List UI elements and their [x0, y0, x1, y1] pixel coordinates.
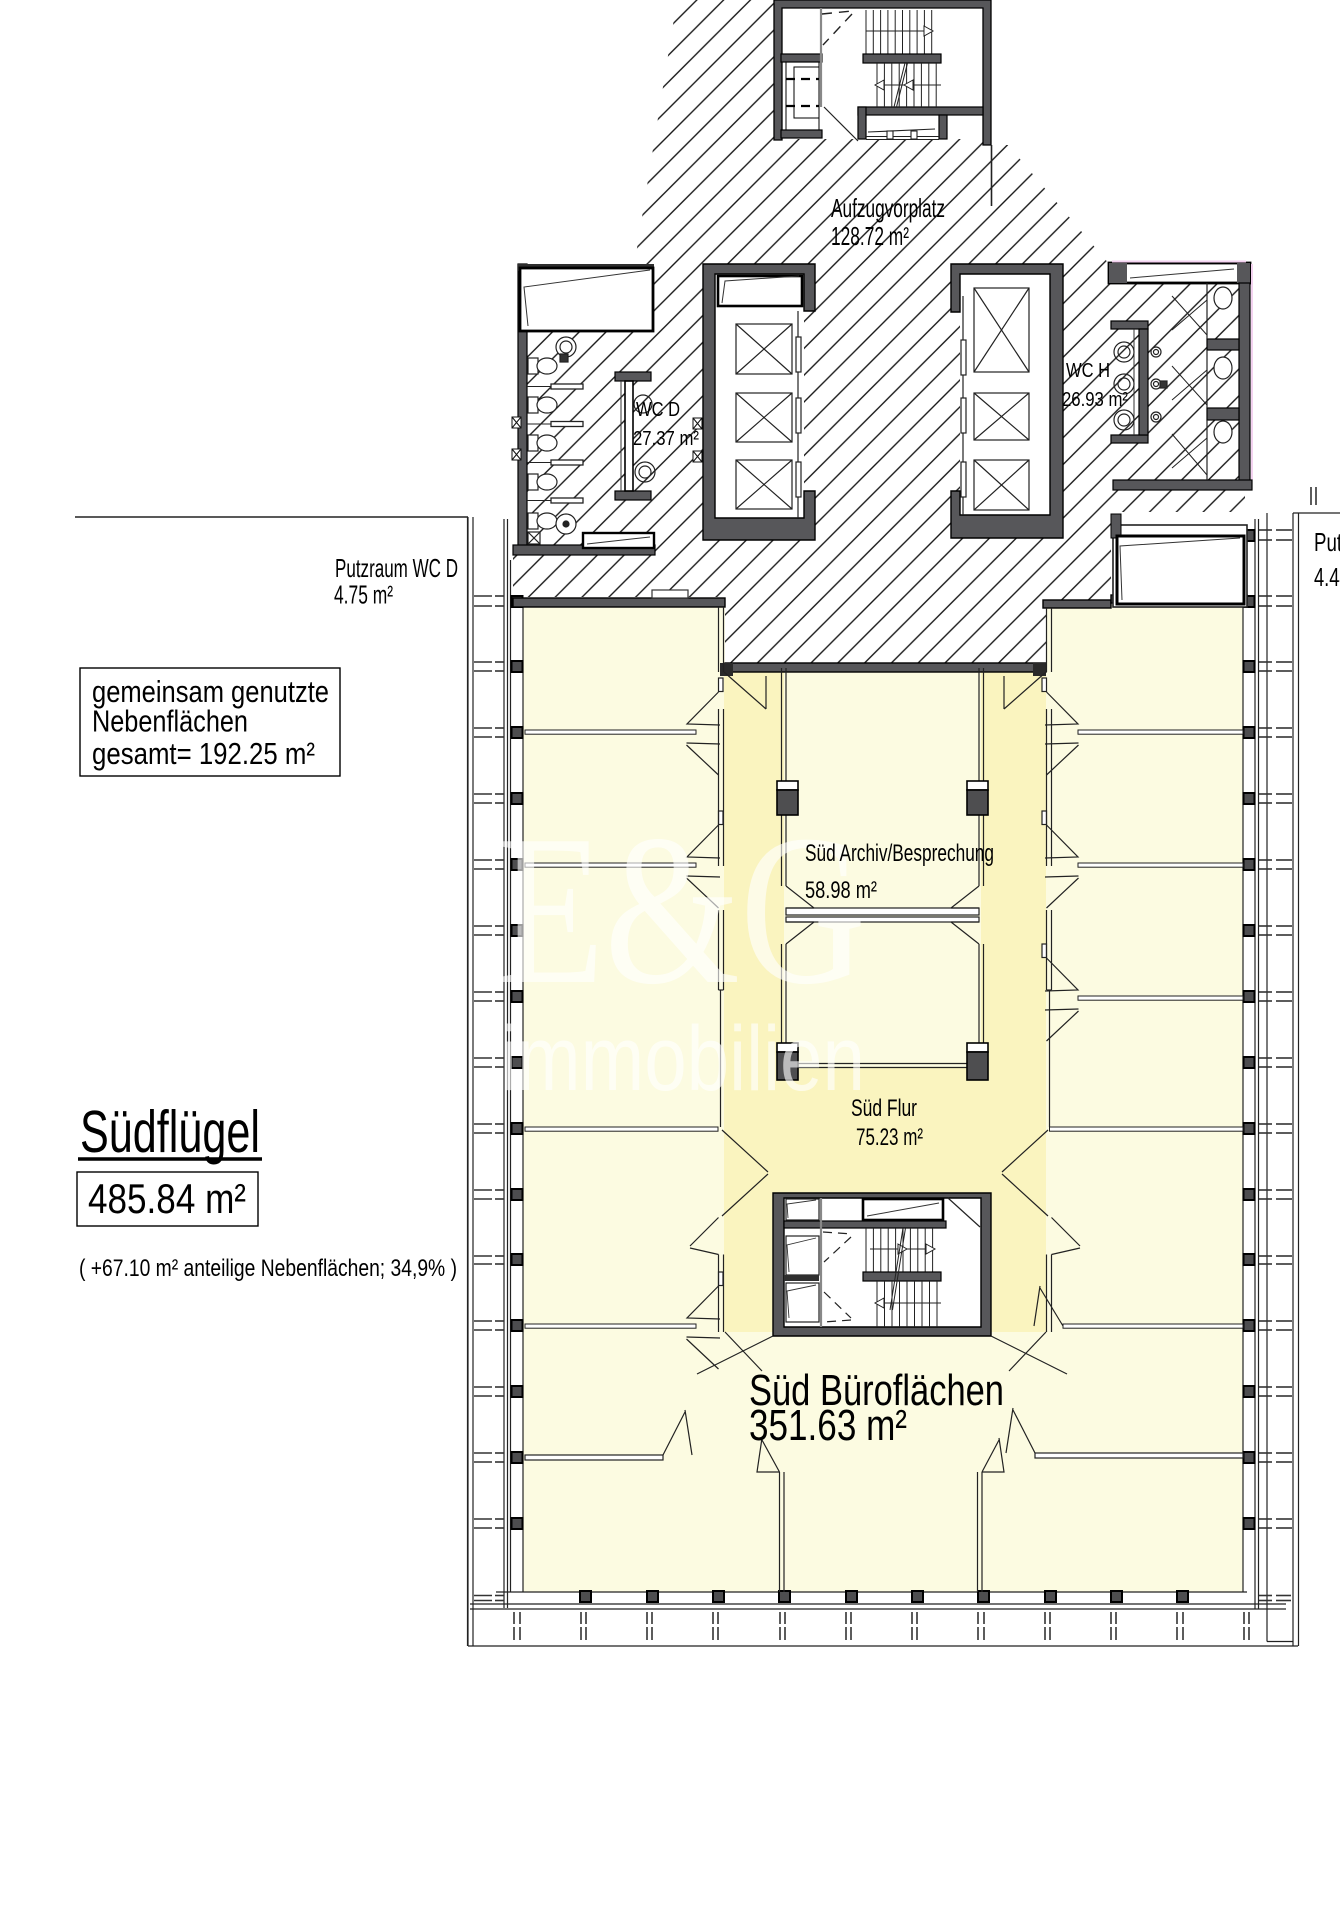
svg-text:128.72 m²: 128.72 m² [831, 221, 909, 251]
svg-text:Putzraum: Putzraum [1314, 527, 1340, 557]
svg-text:immobilien: immobilien [500, 1008, 865, 1110]
svg-text:4.44 m²: 4.44 m² [1314, 562, 1340, 592]
svg-text:Putzraum WC D: Putzraum WC D [335, 553, 458, 583]
svg-text:Aufzugvorplatz: Aufzugvorplatz [831, 193, 945, 223]
svg-text:gesamt= 192.25 m²: gesamt= 192.25 m² [92, 736, 315, 771]
svg-text:Nebenflächen: Nebenflächen [92, 704, 248, 739]
svg-text:26.93 m²: 26.93 m² [1062, 389, 1128, 411]
svg-text:27.37 m²: 27.37 m² [633, 428, 699, 450]
svg-text:58.98 m²: 58.98 m² [805, 877, 877, 904]
svg-text:351.63 m²: 351.63 m² [749, 1402, 907, 1450]
svg-text:75.23 m²: 75.23 m² [856, 1124, 923, 1151]
svg-text:WC H: WC H [1066, 360, 1110, 382]
svg-text:Südflügel: Südflügel [80, 1099, 260, 1165]
svg-text:E&G: E&G [498, 790, 866, 1029]
svg-text:485.84 m²: 485.84 m² [88, 1175, 246, 1222]
svg-text:WC D: WC D [636, 399, 680, 421]
svg-text:( +67.10 m² anteilige Nebenflä: ( +67.10 m² anteilige Nebenflächen; 34,9… [79, 1255, 457, 1282]
svg-text:Süd Archiv/Besprechung: Süd Archiv/Besprechung [805, 840, 994, 867]
svg-text:4.75 m²: 4.75 m² [334, 580, 393, 610]
svg-text:Süd Flur: Süd Flur [851, 1095, 917, 1122]
